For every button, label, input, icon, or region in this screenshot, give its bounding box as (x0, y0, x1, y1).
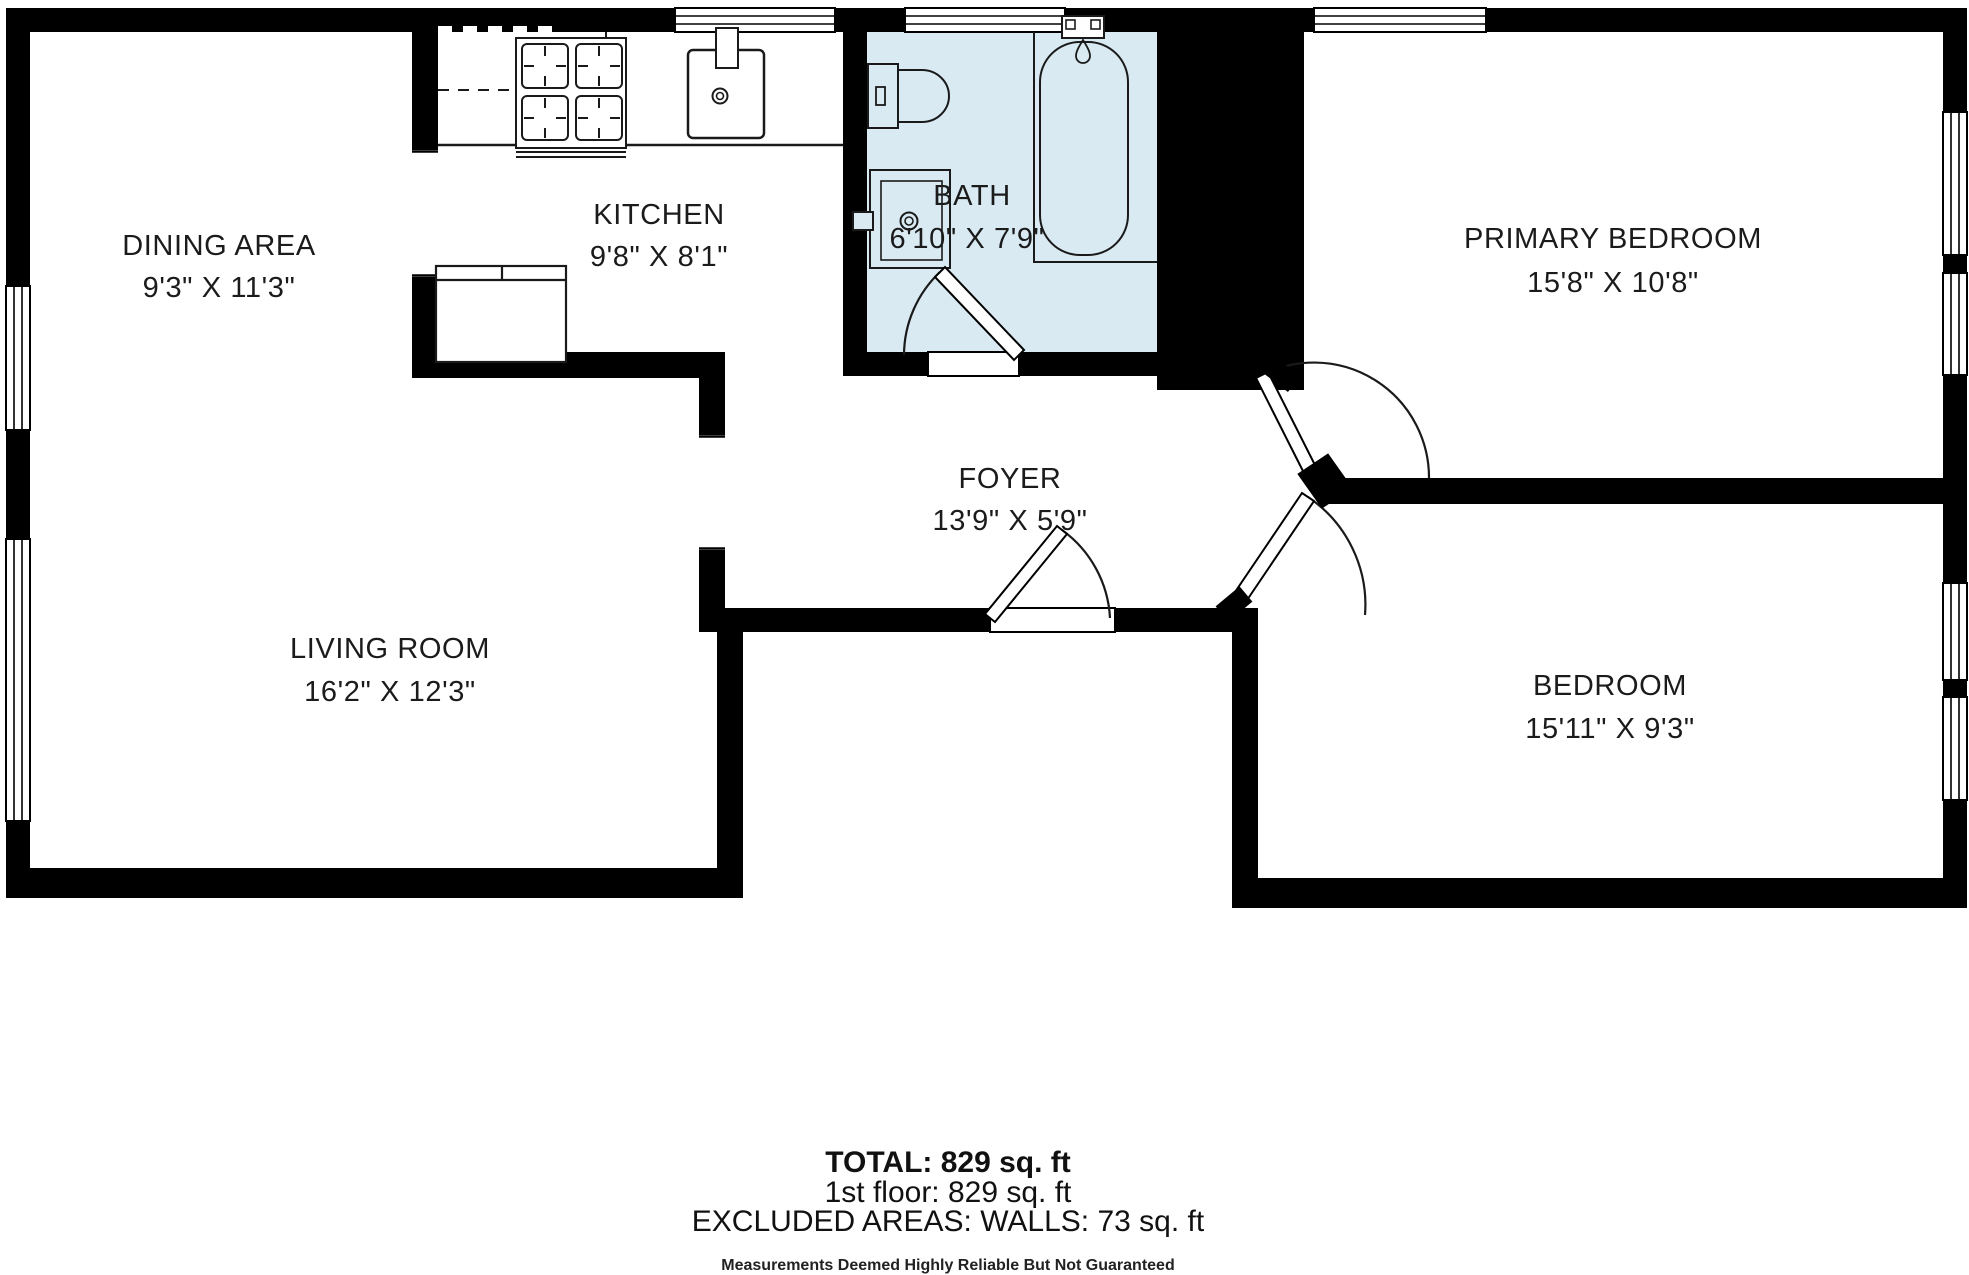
svg-text:9'3" X 11'3": 9'3" X 11'3" (143, 272, 296, 304)
room-label-living-room: LIVING ROOM 16'2" X 12'3" (290, 633, 490, 708)
window-dining-left (6, 286, 30, 430)
svg-text:9'8" X 8'1": 9'8" X 8'1" (590, 241, 728, 273)
svg-text:BATH: BATH (933, 180, 1011, 212)
window-primary-right-lower (1943, 273, 1967, 375)
refrigerator-icon (436, 266, 566, 362)
total-area: TOTAL: 829 sq. ft (825, 1146, 1071, 1179)
disclaimer: Measurements Deemed Highly Reliable But … (721, 1257, 1174, 1274)
room-label-foyer: FOYER 13'9" X 5'9" (933, 463, 1088, 537)
window-primary-right-upper (1943, 112, 1967, 255)
window-primary-bedroom-top (1314, 8, 1486, 32)
window-kitchen (675, 8, 835, 32)
window-living-left (6, 539, 30, 821)
svg-text:PRIMARY BEDROOM: PRIMARY BEDROOM (1464, 223, 1762, 255)
room-label-primary-bedroom: PRIMARY BEDROOM 15'8" X 10'8" (1464, 223, 1762, 299)
window-bath (905, 8, 1065, 32)
area-summary: TOTAL: 829 sq. ft 1st floor: 829 sq. ft … (692, 1146, 1205, 1274)
window-bedroom-right-lower (1943, 697, 1967, 800)
svg-text:BEDROOM: BEDROOM (1533, 670, 1687, 702)
excluded-areas: EXCLUDED AREAS: WALLS: 73 sq. ft (692, 1205, 1205, 1238)
svg-text:15'11" X 9'3": 15'11" X 9'3" (1525, 713, 1695, 745)
floor-plan: DINING AREA 9'3" X 11'3" KITCHEN 9'8" X … (0, 0, 1969, 1275)
stove-icon (516, 38, 626, 157)
window-bedroom-right-upper (1943, 583, 1967, 680)
svg-text:DINING AREA: DINING AREA (122, 230, 316, 262)
svg-text:6'10" X 7'9": 6'10" X 7'9" (890, 223, 1045, 255)
svg-text:13'9" X 5'9": 13'9" X 5'9" (933, 505, 1088, 537)
room-label-bedroom: BEDROOM 15'11" X 9'3" (1525, 670, 1695, 745)
kitchen-sink-icon (688, 28, 764, 138)
bedroom-door (1229, 493, 1365, 615)
room-label-kitchen: KITCHEN 9'8" X 8'1" (590, 199, 728, 273)
svg-text:KITCHEN: KITCHEN (593, 199, 725, 231)
svg-text:15'8" X 10'8": 15'8" X 10'8" (1527, 267, 1699, 299)
svg-text:16'2" X 12'3": 16'2" X 12'3" (304, 676, 476, 708)
svg-text:FOYER: FOYER (959, 463, 1062, 495)
toilet-icon (868, 64, 949, 128)
room-label-dining-area: DINING AREA 9'3" X 11'3" (122, 230, 316, 304)
svg-text:LIVING ROOM: LIVING ROOM (290, 633, 490, 665)
kitchen-counter (438, 29, 843, 145)
door-frame-posts (1222, 352, 1352, 614)
